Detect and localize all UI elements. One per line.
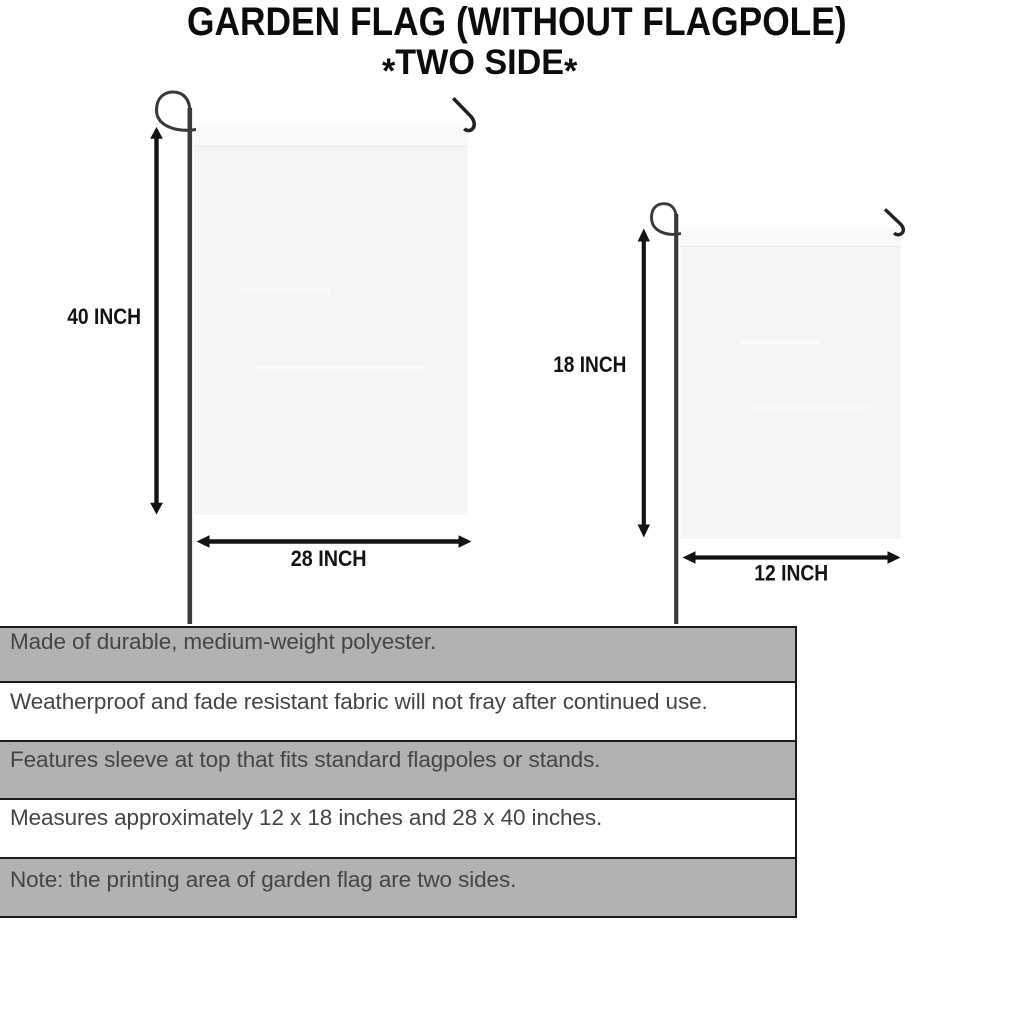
svg-text:12 INCH: 12 INCH xyxy=(754,561,828,586)
svg-text:40 INCH: 40 INCH xyxy=(67,304,141,329)
svg-text:18 INCH: 18 INCH xyxy=(553,352,626,377)
svg-text:28 INCH: 28 INCH xyxy=(291,546,367,571)
